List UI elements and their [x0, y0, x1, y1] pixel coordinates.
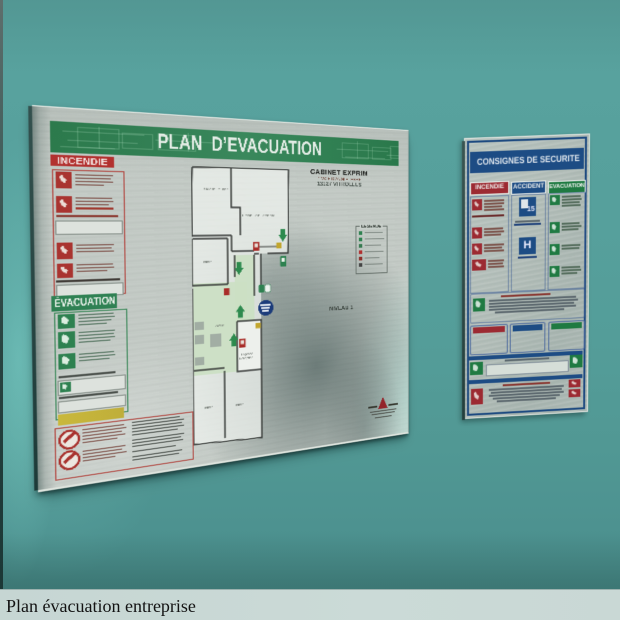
svg-text:Bureau: Bureau — [203, 259, 214, 263]
svg-text:Salle de Réunion: Salle de Réunion — [204, 187, 229, 192]
svg-text:Accueil: Accueil — [215, 323, 225, 328]
svg-text:Grande Salle Séminaire: Grande Salle Séminaire — [242, 213, 275, 217]
